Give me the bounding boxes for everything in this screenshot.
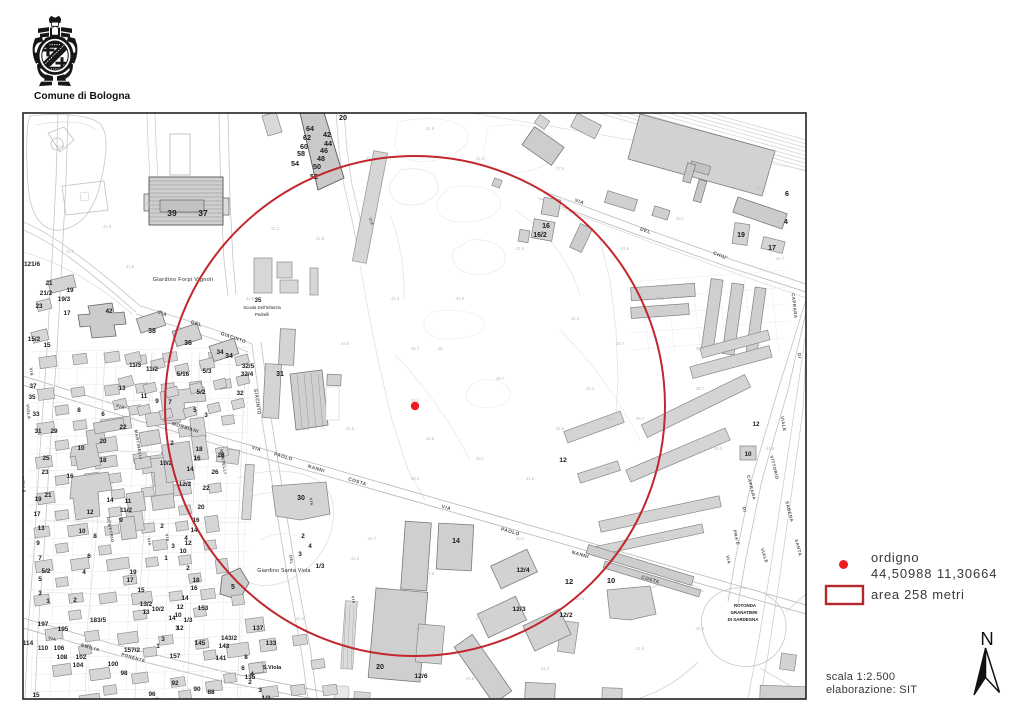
svg-text:12/6: 12/6 [414,673,427,680]
svg-text:25: 25 [42,455,50,462]
svg-text:41.5: 41.5 [656,536,665,541]
svg-text:42: 42 [105,308,113,315]
svg-text:1: 1 [156,643,160,650]
svg-text:13: 13 [118,385,126,392]
svg-text:17: 17 [63,310,71,317]
svg-text:100: 100 [108,661,119,668]
svg-text:41.5: 41.5 [656,296,665,301]
svg-text:10/2: 10/2 [152,606,165,613]
svg-text:38.4: 38.4 [636,416,645,421]
svg-text:197: 197 [38,621,49,628]
svg-text:12: 12 [565,577,573,586]
svg-text:41.5: 41.5 [426,436,435,441]
svg-text:DI: DI [797,353,803,359]
svg-text:5: 5 [231,584,235,591]
svg-text:44.5: 44.5 [696,626,705,631]
svg-text:23: 23 [41,469,49,476]
svg-text:32/4: 32/4 [241,371,254,378]
svg-text:N: N [980,628,993,649]
svg-text:41.5: 41.5 [476,156,485,161]
svg-text:Giardino Santa Viola: Giardino Santa Viola [257,568,311,574]
svg-text:28.6: 28.6 [606,416,615,421]
svg-text:41.7: 41.7 [776,256,785,261]
svg-text:18: 18 [195,446,203,453]
svg-text:44.5: 44.5 [341,341,350,346]
svg-text:Pedrelli: Pedrelli [255,312,269,317]
svg-text:94.8: 94.8 [56,144,65,149]
svg-text:19: 19 [737,232,745,239]
svg-text:133: 133 [266,640,277,647]
svg-text:28.7: 28.7 [606,466,615,471]
svg-text:9: 9 [155,398,159,405]
svg-text:area 258 metri: area 258 metri [871,587,965,602]
svg-text:12: 12 [176,625,184,632]
svg-text:41.7: 41.7 [368,536,377,541]
svg-text:28.7: 28.7 [616,341,625,346]
svg-text:elaborazione: SIT: elaborazione: SIT [826,684,917,696]
svg-text:34: 34 [225,353,233,360]
svg-text:114: 114 [23,640,34,647]
svg-text:110: 110 [38,645,49,652]
svg-text:5/2: 5/2 [42,568,51,575]
svg-text:15: 15 [32,692,40,699]
svg-text:143: 143 [219,643,230,650]
svg-text:62: 62 [303,133,311,142]
svg-text:141: 141 [216,655,227,662]
svg-text:21: 21 [45,280,53,287]
svg-text:1/3: 1/3 [316,563,325,570]
svg-text:17: 17 [768,245,776,252]
svg-text:64: 64 [306,124,314,133]
svg-text:8: 8 [77,407,81,414]
svg-text:19: 19 [129,569,137,576]
svg-text:41.7: 41.7 [416,626,425,631]
svg-text:12/2: 12/2 [179,481,192,488]
svg-text:41.8: 41.8 [126,264,135,269]
svg-text:4: 4 [250,671,254,678]
svg-text:41.5: 41.5 [556,426,565,431]
svg-text:11/2: 11/2 [120,507,133,514]
svg-text:41.5: 41.5 [466,676,475,681]
svg-text:10: 10 [607,576,615,585]
svg-text:32/5: 32/5 [242,363,255,370]
svg-text:DI SARDEGNA: DI SARDEGNA [728,617,760,622]
svg-text:106: 106 [54,645,65,652]
svg-text:2: 2 [73,597,77,604]
svg-text:10: 10 [77,445,85,452]
svg-text:29.4: 29.4 [696,346,705,351]
svg-text:8: 8 [93,533,97,540]
svg-text:4: 4 [308,543,312,550]
svg-text:28.4: 28.4 [586,386,595,391]
svg-text:14: 14 [452,538,460,545]
svg-text:22: 22 [202,485,210,492]
svg-text:43.5: 43.5 [714,446,723,451]
svg-text:2: 2 [160,523,164,530]
svg-text:1/3: 1/3 [184,617,193,624]
svg-text:37: 37 [29,383,37,390]
svg-text:104: 104 [73,662,84,669]
svg-text:4: 4 [784,219,788,226]
svg-text:Giardino Forpi Vignoli: Giardino Forpi Vignoli [153,277,214,283]
svg-text:Comune di Bologna: Comune di Bologna [34,91,131,102]
svg-text:38: 38 [148,328,156,335]
svg-text:ROTONDA: ROTONDA [734,603,757,608]
svg-text:41.8: 41.8 [621,246,630,251]
svg-text:28: 28 [217,452,225,459]
svg-text:28.7: 28.7 [476,456,485,461]
svg-text:17: 17 [33,511,41,518]
svg-text:ordigno: ordigno [871,550,919,565]
svg-text:2: 2 [248,679,252,686]
svg-text:3: 3 [161,636,165,643]
svg-text:2: 2 [301,533,305,540]
svg-text:183/5: 183/5 [90,617,106,624]
svg-text:41.8: 41.8 [316,236,325,241]
svg-text:18: 18 [192,577,200,584]
svg-text:3: 3 [171,543,175,550]
svg-text:16/2: 16/2 [533,232,547,239]
svg-text:41.5: 41.5 [296,616,305,621]
svg-text:16: 16 [193,455,201,462]
svg-text:22: 22 [119,424,127,431]
svg-text:GRANATIERI: GRANATIERI [731,610,758,615]
svg-text:15: 15 [43,342,51,349]
svg-text:26: 26 [211,469,219,476]
svg-text:33: 33 [32,411,40,418]
svg-text:20: 20 [99,438,107,445]
svg-text:41.5: 41.5 [516,246,525,251]
svg-text:15: 15 [137,587,145,594]
svg-text:41.3: 41.3 [301,426,310,431]
svg-text:6: 6 [87,553,91,560]
svg-text:41.3: 41.3 [391,296,400,301]
svg-text:1: 1 [164,555,168,562]
svg-text:31: 31 [276,371,284,378]
svg-text:40.3: 40.3 [411,476,420,481]
svg-text:88: 88 [207,689,215,696]
svg-text:14: 14 [181,595,189,602]
svg-text:20: 20 [376,664,384,671]
svg-text:20: 20 [339,113,347,122]
svg-text:10: 10 [744,451,752,458]
svg-text:27.5: 27.5 [556,166,565,171]
svg-text:12: 12 [559,457,567,464]
svg-text:12/4: 12/4 [516,567,529,574]
svg-text:41.5: 41.5 [351,556,360,561]
svg-text:41.8: 41.8 [103,224,112,229]
svg-text:3: 3 [298,551,302,558]
svg-text:29: 29 [50,428,58,435]
svg-text:6: 6 [101,411,105,418]
svg-text:12/2: 12/2 [559,612,572,619]
svg-text:35: 35 [28,394,36,401]
svg-text:32: 32 [236,390,244,397]
svg-text:24.2: 24.2 [756,186,765,191]
svg-text:6: 6 [785,191,789,198]
svg-text:41.5: 41.5 [346,426,355,431]
svg-text:41.5: 41.5 [636,646,645,651]
svg-text:41.5: 41.5 [426,571,435,576]
svg-text:45: 45 [438,346,443,351]
svg-text:41.5: 41.5 [766,446,775,451]
svg-text:16: 16 [66,473,74,480]
svg-text:10: 10 [179,548,187,555]
svg-text:4: 4 [184,535,188,542]
svg-text:11: 11 [125,498,132,505]
svg-text:13: 13 [37,525,45,532]
svg-text:41.5: 41.5 [476,616,485,621]
svg-text:34: 34 [216,349,224,356]
svg-text:9: 9 [119,517,123,524]
svg-text:21/2: 21/2 [40,290,53,297]
svg-text:5: 5 [193,407,197,414]
svg-text:137: 137 [253,625,264,632]
svg-text:8: 8 [244,654,248,661]
svg-text:28.7: 28.7 [676,216,685,221]
svg-text:50: 50 [313,162,321,171]
svg-text:96: 96 [148,691,156,698]
svg-text:30.2: 30.2 [516,536,525,541]
svg-text:54: 54 [291,159,299,168]
svg-text:28.7: 28.7 [696,386,705,391]
svg-text:41.8: 41.8 [426,126,435,131]
svg-text:11: 11 [141,393,148,400]
svg-text:37: 37 [198,208,208,218]
svg-text:3: 3 [38,590,42,597]
svg-text:35: 35 [255,298,262,304]
svg-text:7: 7 [168,399,172,406]
svg-text:19: 19 [34,496,42,503]
svg-text:23: 23 [35,303,43,310]
svg-text:10: 10 [174,612,182,619]
svg-text:108: 108 [57,654,68,661]
svg-text:17: 17 [126,577,134,584]
svg-text:3: 3 [258,687,262,694]
svg-text:6: 6 [241,665,245,672]
svg-text:2: 2 [186,565,190,572]
svg-text:41.2: 41.2 [541,666,550,671]
svg-text:VIA: VIA [28,367,34,376]
svg-text:11/2: 11/2 [146,366,159,373]
svg-text:11/3: 11/3 [129,362,142,369]
svg-text:4: 4 [82,569,86,576]
svg-text:41.8: 41.8 [146,201,155,206]
svg-text:12: 12 [86,509,94,516]
svg-text:41.7: 41.7 [66,249,75,254]
svg-text:10: 10 [78,528,86,535]
svg-text:58: 58 [297,149,305,158]
svg-text:Scuola Dell'Infanzia: Scuola Dell'Infanzia [243,305,281,310]
svg-text:5/3: 5/3 [203,368,212,375]
svg-text:19: 19 [66,287,74,294]
svg-text:18: 18 [99,457,107,464]
svg-text:3: 3 [204,412,208,419]
svg-text:30: 30 [297,495,305,502]
svg-text:16: 16 [542,223,550,230]
svg-text:143/2: 143/2 [221,635,237,642]
svg-text:9: 9 [36,540,40,547]
svg-text:13/2: 13/2 [140,601,153,608]
svg-text:44,50988 11,30664: 44,50988 11,30664 [871,566,997,581]
svg-text:14: 14 [186,466,194,473]
svg-text:92: 92 [171,680,179,687]
svg-text:1: 1 [46,598,50,605]
svg-text:153: 153 [198,605,209,612]
svg-text:39: 39 [167,208,177,218]
svg-text:12: 12 [176,604,184,611]
svg-text:42: 42 [323,130,331,139]
svg-text:7: 7 [38,555,42,562]
svg-text:31: 31 [34,428,42,435]
svg-text:5/16: 5/16 [177,371,190,378]
svg-text:157: 157 [170,653,181,660]
svg-text:12: 12 [752,421,760,428]
svg-text:90: 90 [193,686,201,693]
svg-text:157/2: 157/2 [124,647,140,654]
svg-text:19/3: 19/3 [58,296,71,303]
svg-text:5/2: 5/2 [197,389,206,396]
svg-text:21: 21 [44,492,52,499]
svg-text:12/3: 12/3 [512,606,525,613]
svg-text:5: 5 [38,576,42,583]
svg-text:98: 98 [120,670,128,677]
svg-text:41.1: 41.1 [271,226,280,231]
svg-text:41.5: 41.5 [571,316,580,321]
svg-text:121/6: 121/6 [24,261,40,268]
svg-text:41.5: 41.5 [526,476,535,481]
svg-text:13: 13 [142,609,150,616]
svg-text:20: 20 [197,504,205,511]
svg-text:14: 14 [106,497,114,504]
svg-text:2: 2 [170,440,174,447]
svg-text:S.Viola: S.Viola [263,665,282,671]
svg-text:28.7: 28.7 [496,376,505,381]
svg-text:36: 36 [184,340,192,347]
svg-text:195: 195 [58,626,69,633]
svg-text:145: 145 [195,640,206,647]
svg-text:15/2: 15/2 [28,336,41,343]
svg-text:41.5: 41.5 [456,296,465,301]
svg-text:41.8: 41.8 [246,296,255,301]
svg-text:16: 16 [190,585,198,592]
svg-text:28.7: 28.7 [411,346,420,351]
svg-text:scala 1:2.500: scala 1:2.500 [826,671,895,683]
svg-text:102: 102 [76,654,87,661]
